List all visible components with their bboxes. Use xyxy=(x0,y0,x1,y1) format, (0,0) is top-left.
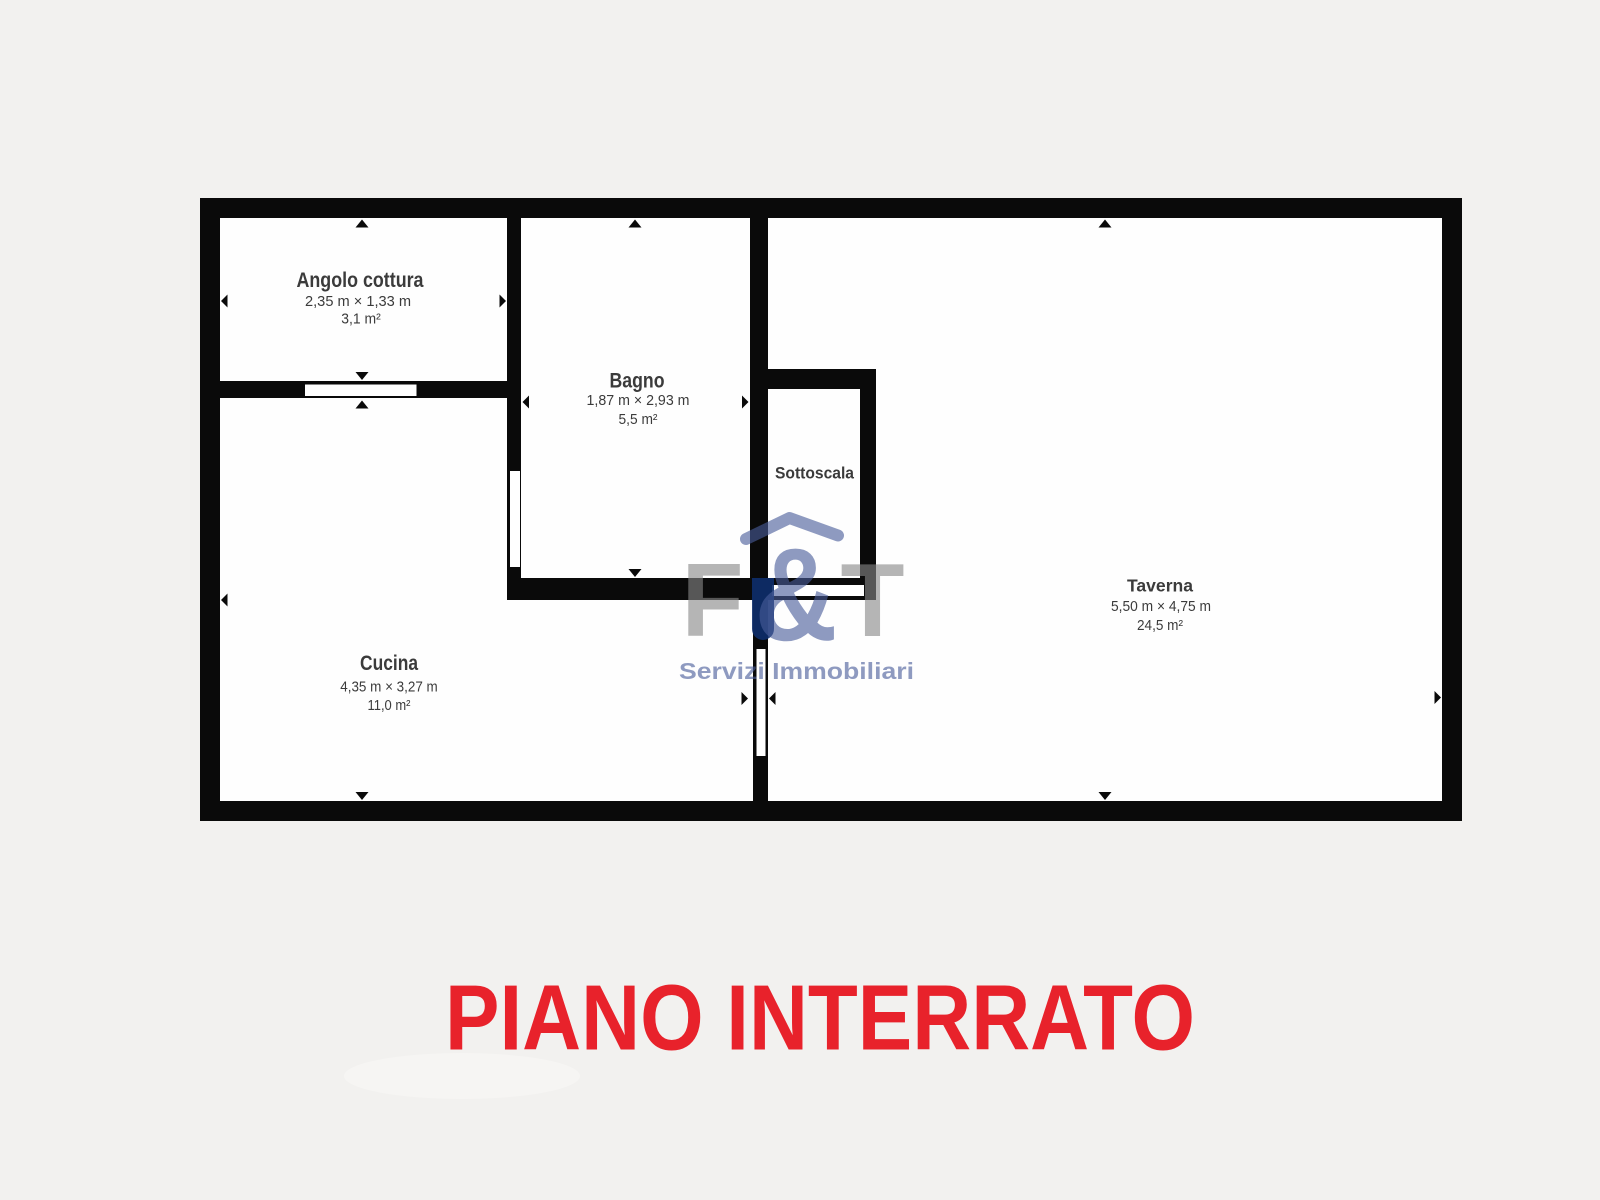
svg-text:11,0 m²: 11,0 m² xyxy=(368,698,411,714)
svg-text:1,87 m × 2,93 m: 1,87 m × 2,93 m xyxy=(587,393,690,409)
svg-text:Servizi Immobiliari: Servizi Immobiliari xyxy=(679,658,914,684)
svg-text:3,1 m²: 3,1 m² xyxy=(341,312,381,328)
svg-text:5,50 m × 4,75 m: 5,50 m × 4,75 m xyxy=(1111,599,1211,615)
svg-text:5,5 m²: 5,5 m² xyxy=(619,412,658,428)
svg-text:&: & xyxy=(755,521,838,668)
svg-text:T: T xyxy=(841,543,905,659)
svg-text:2,35 m × 1,33 m: 2,35 m × 1,33 m xyxy=(305,294,411,310)
svg-text:Taverna: Taverna xyxy=(1127,576,1193,596)
svg-text:4,35 m × 3,27 m: 4,35 m × 3,27 m xyxy=(340,680,438,696)
svg-text:Angolo cottura: Angolo cottura xyxy=(297,269,424,292)
svg-text:F: F xyxy=(682,543,744,659)
svg-text:Cucina: Cucina xyxy=(360,652,418,675)
svg-text:24,5 m²: 24,5 m² xyxy=(1137,618,1183,634)
svg-text:PIANO INTERRATO: PIANO INTERRATO xyxy=(445,966,1195,1070)
svg-text:Sottoscala: Sottoscala xyxy=(775,464,854,483)
svg-text:Bagno: Bagno xyxy=(610,370,665,393)
